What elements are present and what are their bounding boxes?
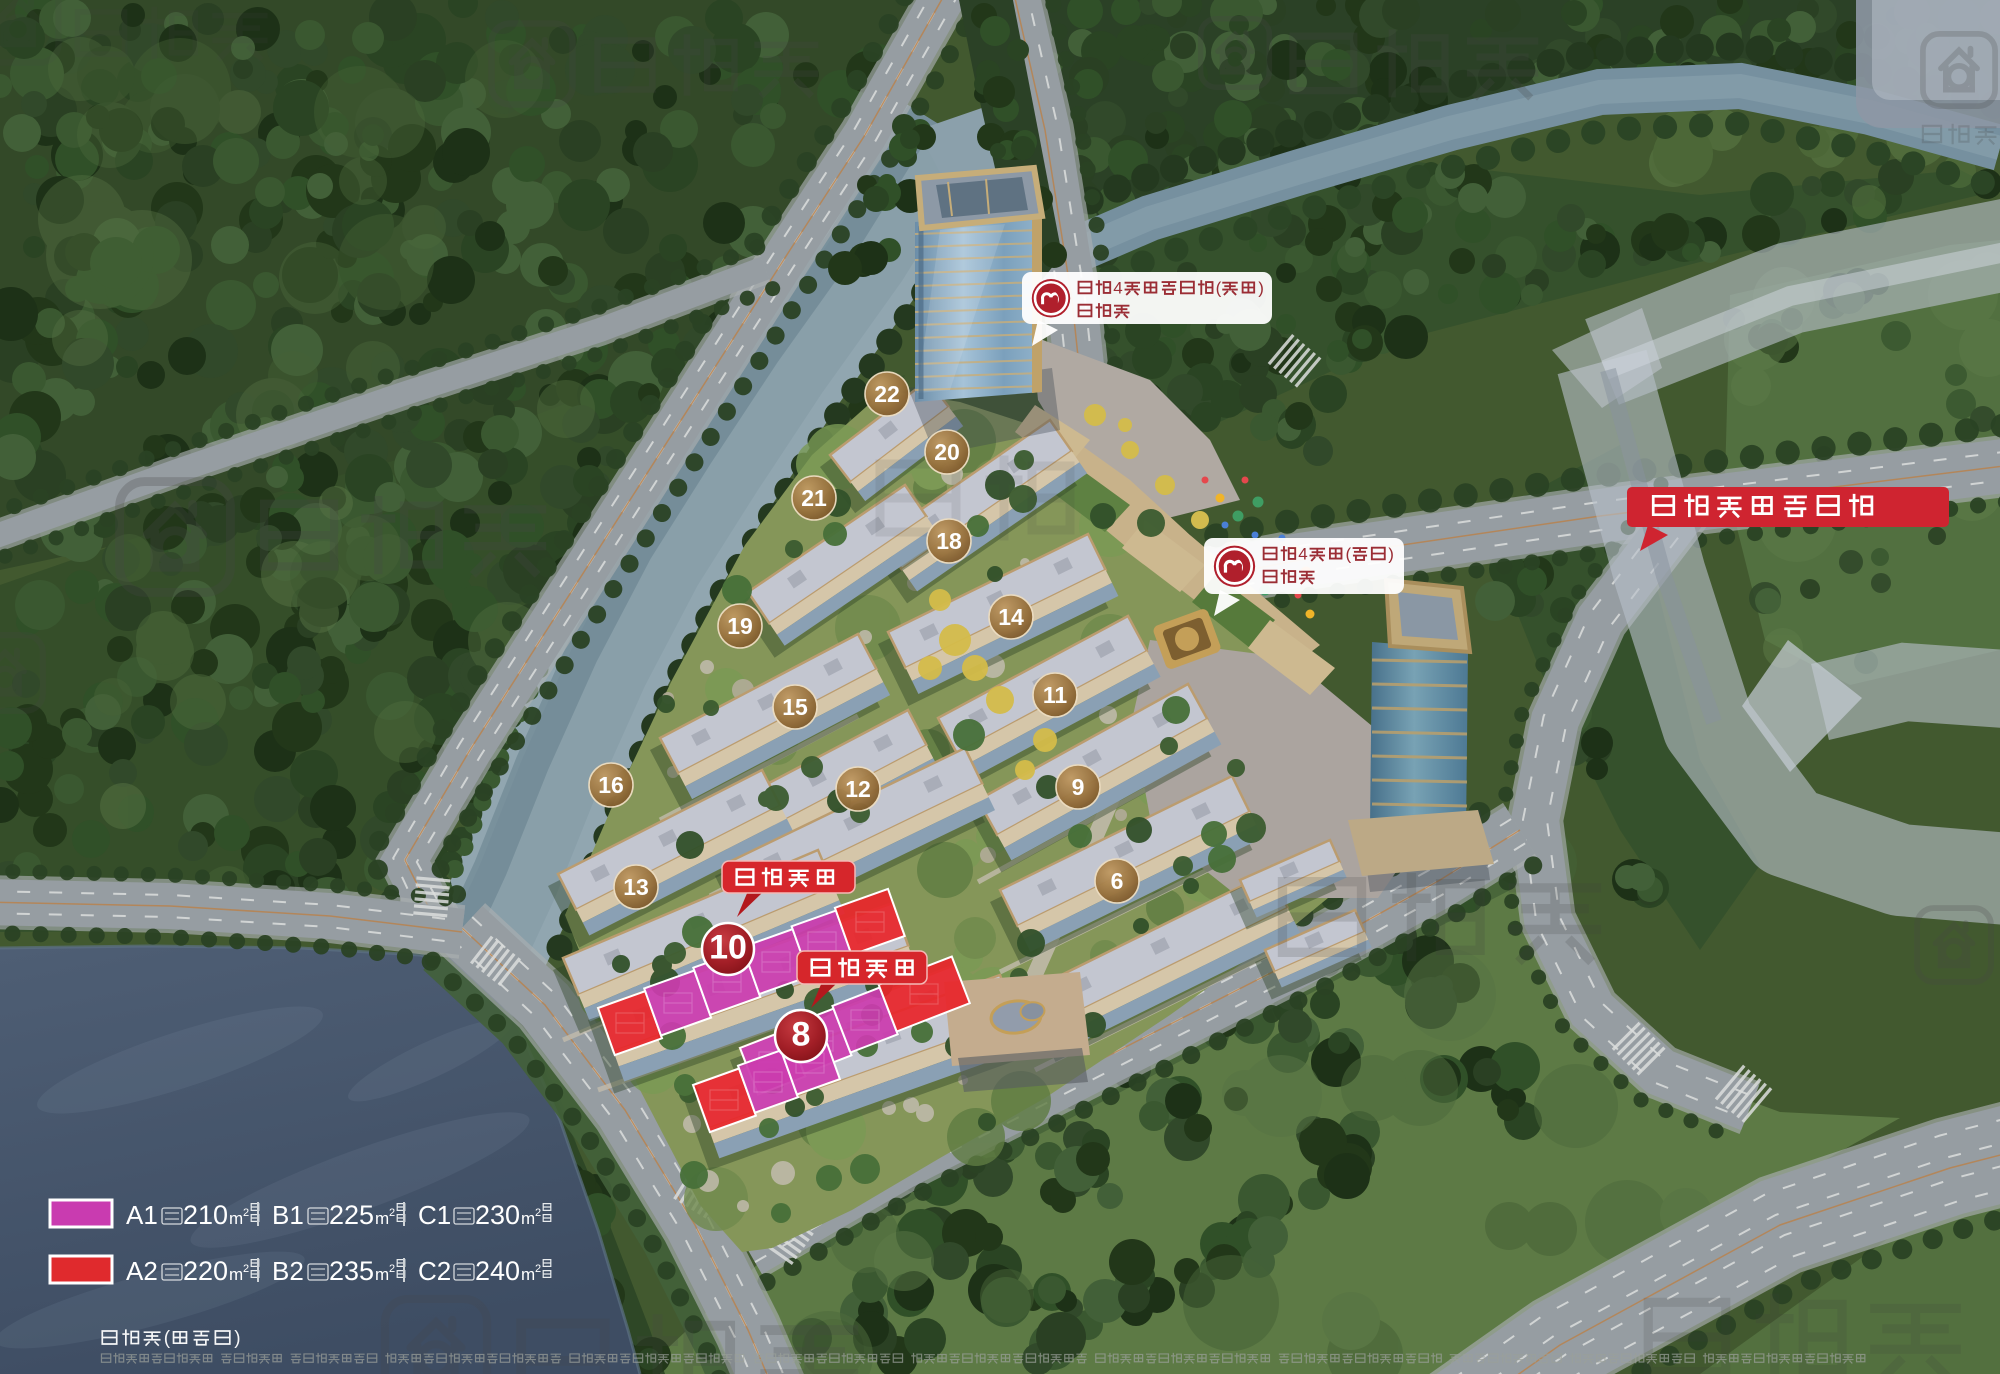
svg-text:m: m — [521, 1209, 535, 1228]
svg-text:9: 9 — [1072, 774, 1085, 800]
svg-text:): ) — [1388, 545, 1394, 564]
svg-text:4: 4 — [1298, 545, 1307, 564]
svg-text:B2: B2 — [272, 1256, 304, 1286]
svg-text:m: m — [229, 1209, 243, 1228]
svg-text:6: 6 — [1111, 868, 1124, 894]
svg-text:22: 22 — [874, 381, 900, 407]
svg-text:m: m — [521, 1265, 535, 1284]
svg-text:14: 14 — [998, 604, 1024, 630]
svg-text:230: 230 — [475, 1200, 520, 1230]
svg-text:11: 11 — [1043, 682, 1068, 708]
svg-text:2: 2 — [535, 1263, 541, 1275]
svg-text:2: 2 — [243, 1263, 249, 1275]
svg-text:2: 2 — [535, 1207, 541, 1219]
svg-text:m: m — [375, 1209, 389, 1228]
svg-text:m: m — [375, 1265, 389, 1284]
svg-text:220: 220 — [183, 1256, 228, 1286]
svg-text:235: 235 — [329, 1256, 374, 1286]
svg-text:210: 210 — [183, 1200, 228, 1230]
svg-text:2: 2 — [389, 1263, 395, 1275]
svg-text:2: 2 — [389, 1207, 395, 1219]
svg-text:21: 21 — [801, 485, 827, 511]
svg-text:A2: A2 — [126, 1256, 158, 1286]
svg-text:m: m — [229, 1265, 243, 1284]
svg-text:(: ( — [1216, 278, 1222, 297]
svg-text:20: 20 — [934, 439, 960, 465]
svg-text:): ) — [1258, 278, 1264, 297]
svg-text:15: 15 — [782, 694, 808, 720]
svg-text:12: 12 — [845, 776, 871, 802]
svg-text:4: 4 — [1113, 278, 1122, 297]
svg-text:19: 19 — [727, 613, 753, 639]
svg-text:C2: C2 — [418, 1256, 451, 1286]
svg-text:8: 8 — [792, 1016, 811, 1054]
svg-text:10: 10 — [709, 929, 747, 967]
svg-text:225: 225 — [329, 1200, 374, 1230]
svg-text:18: 18 — [936, 528, 962, 554]
svg-text:240: 240 — [475, 1256, 520, 1286]
svg-text:(: ( — [164, 1328, 171, 1349]
svg-text:A1: A1 — [126, 1200, 158, 1230]
svg-text:C1: C1 — [418, 1200, 451, 1230]
svg-text:(: ( — [1346, 545, 1352, 564]
svg-text:13: 13 — [623, 874, 649, 900]
svg-text:B1: B1 — [272, 1200, 304, 1230]
svg-text:16: 16 — [598, 772, 624, 798]
svg-text:): ) — [234, 1328, 240, 1349]
svg-text:2: 2 — [243, 1207, 249, 1219]
